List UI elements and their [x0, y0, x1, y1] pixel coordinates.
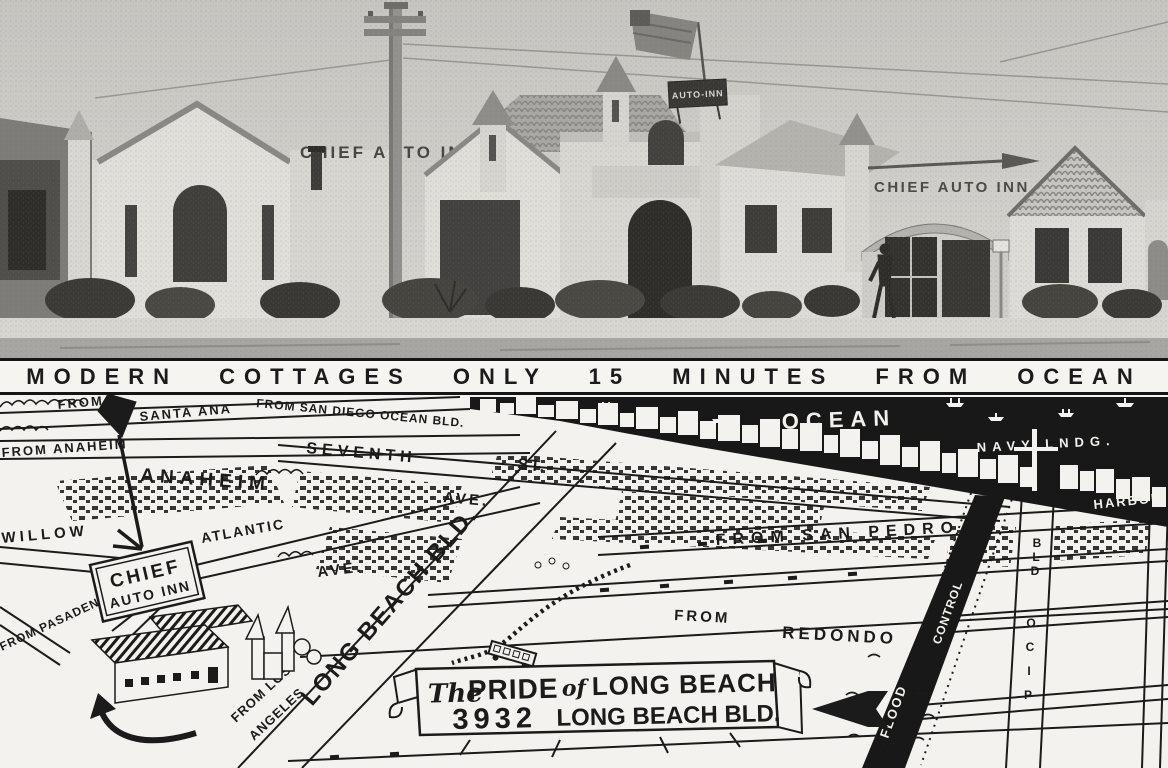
photo-grain	[0, 0, 1168, 358]
photo-section: CHIEF AUTO INN	[0, 0, 1168, 358]
ocean-label: OCEAN	[781, 405, 896, 434]
ribbon-address-number: 3932	[452, 702, 537, 736]
pico-letter: C	[1026, 640, 1035, 654]
ribbon-address-street: LONG BEACH BLD.	[556, 700, 781, 732]
bld-letter: L	[1032, 550, 1039, 564]
pico-letter: P	[1024, 688, 1032, 702]
ribbon-pride: PRIDE	[468, 673, 559, 706]
caption-banner: MODERN COTTAGES ONLY 15 MINUTES FROM OCE…	[0, 358, 1168, 395]
postcard: CHIEF AUTO INN	[0, 0, 1168, 768]
pico-letter: O	[1026, 616, 1035, 630]
from-redondo-label-1: FROM	[674, 607, 731, 627]
ribbon-long-beach: LONG BEACH	[591, 667, 776, 701]
seventh-st-label: ST.	[517, 456, 548, 476]
bld-letter: B	[1033, 536, 1042, 550]
map-section: FLOOD CONTROL	[0, 395, 1168, 768]
bld-letter: D	[1031, 564, 1040, 578]
pico-letter: I	[1027, 664, 1030, 678]
caption-text: MODERN COTTAGES ONLY 15 MINUTES FROM OCE…	[26, 364, 1141, 390]
ribbon-of: of	[562, 675, 590, 702]
